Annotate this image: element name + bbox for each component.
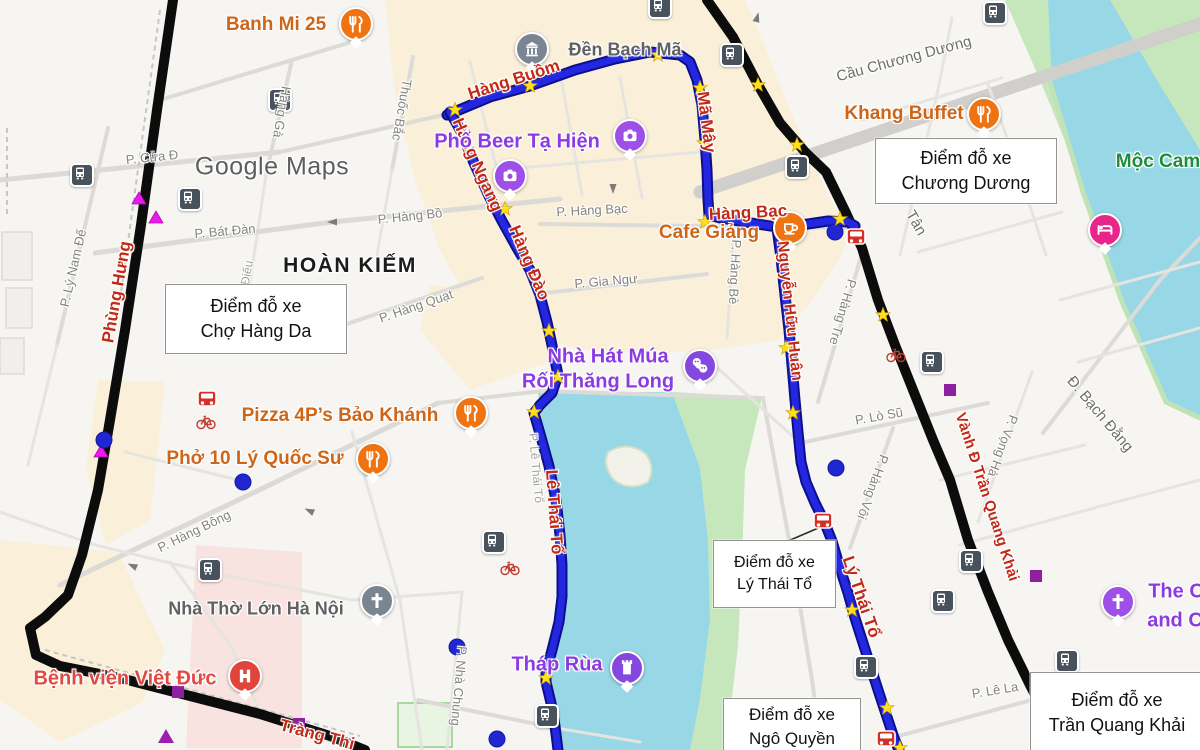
route-street-name-label: Nguyễn Hữu Huân <box>773 240 806 382</box>
transit-station-icon[interactable] <box>178 187 202 211</box>
street-name-label: Đ. Bạch Đằng <box>1063 373 1136 455</box>
restaurant-icon[interactable] <box>356 442 390 476</box>
restaurant-icon[interactable] <box>339 7 373 41</box>
google-maps-watermark: Google Maps <box>195 153 349 182</box>
poi-label: Rối Thăng Long <box>522 371 674 394</box>
poi-label: Nhà Hát Múa <box>547 346 668 369</box>
parking-label-tran-quang-khai: Điểm đỗ xeTrần Quang Khải <box>1030 672 1200 750</box>
poi-label: Bệnh viện Việt Đức <box>33 668 216 691</box>
poi-label: Mộc Cam <box>1116 151 1200 173</box>
hospital-icon[interactable] <box>228 659 262 693</box>
poi-label: Banh Mi 25 <box>226 14 326 36</box>
poi-label: Pizza 4P’s Bảo Khánh <box>242 405 439 427</box>
parking-label-line: Điểm đỗ xe <box>876 146 1056 171</box>
hotel-icon[interactable] <box>1088 213 1122 247</box>
parking-label-line: Lý Thái Tổ <box>714 574 835 596</box>
restaurant-icon[interactable] <box>454 396 488 430</box>
poi-label: Đền Bạch Mã <box>568 40 681 61</box>
transit-station-icon[interactable] <box>1055 649 1079 673</box>
poi-label: Khang Buffet <box>844 103 963 125</box>
restaurant-icon[interactable] <box>967 97 1001 131</box>
transit-station-icon[interactable] <box>535 704 559 728</box>
tower-icon[interactable] <box>610 651 644 685</box>
street-name-label: P. Hàng Tre <box>826 277 859 346</box>
street-name-label: P. Lý Nam Đế <box>57 228 89 309</box>
street-name-label: P. Hàng Quạt <box>377 286 455 325</box>
theater-icon[interactable] <box>683 349 717 383</box>
poi-label: The C <box>1148 581 1200 604</box>
parking-label-chuong-duong: Điểm đỗ xeChương Dương <box>875 138 1057 204</box>
transit-station-icon[interactable] <box>785 155 809 179</box>
street-name-label: P. Hàng Vôi <box>854 453 891 522</box>
route-street-name-label: Hàng Đào <box>504 223 553 304</box>
church-icon[interactable] <box>360 584 394 618</box>
route-street-name-label: Hàng Buồm <box>466 56 563 104</box>
street-name-label: Tân <box>902 208 930 239</box>
poi-label: Nhà Thờ Lớn Hà Nội <box>168 599 344 620</box>
street-name-label: P. Hàng Bạc <box>556 201 628 220</box>
camera-icon[interactable] <box>613 119 647 153</box>
poi-label: and C <box>1147 610 1200 633</box>
poi-label: Cafe Giảng <box>659 222 759 244</box>
poi-label: Phố Beer Tạ Hiện <box>434 131 600 154</box>
route-street-name-label: Tràng Thi <box>277 715 356 750</box>
street-name-label: P. Lê La <box>971 679 1020 701</box>
parking-label-ly-thai-to: Điểm đỗ xeLý Thái Tổ <box>713 540 836 608</box>
street-name-label: Cầu Chương Dương <box>835 33 974 85</box>
street-name-label: P. Hàng Bông <box>155 507 233 555</box>
parking-label-cho-hang-da: Điểm đỗ xeChợ Hàng Da <box>165 284 347 354</box>
parking-label-line: Ngô Quyền <box>724 727 860 750</box>
map-canvas[interactable]: Google Maps HOÀN KIẾM P. Cửa ĐP. Bát Đàn… <box>0 0 1200 750</box>
street-name-label: P. Cửa Đ <box>125 147 179 167</box>
transit-station-icon[interactable] <box>720 43 744 67</box>
street-name-label: P. Hàng Bè <box>726 239 744 305</box>
district-label: HOÀN KIẾM <box>283 254 417 278</box>
parking-label-line: Điểm đỗ xe <box>714 552 835 574</box>
transit-station-icon[interactable] <box>959 549 983 573</box>
route-street-name-label: Mã Mây <box>692 90 719 153</box>
transit-station-icon[interactable] <box>920 350 944 374</box>
parking-label-line: Chương Dương <box>876 171 1056 196</box>
route-street-name-label: Phùng Hưng <box>98 240 136 345</box>
street-name-label: P. Gia Ngư <box>574 271 638 291</box>
poi-label: Phở 10 Lý Quốc Sư <box>166 448 343 470</box>
transit-station-icon[interactable] <box>70 163 94 187</box>
street-name-label: P. Lò Sũ <box>854 404 904 427</box>
parking-label-line: Điểm đỗ xe <box>724 703 860 727</box>
transit-station-icon[interactable] <box>482 530 506 554</box>
transit-station-icon[interactable] <box>931 589 955 613</box>
poi-label: Tháp Rùa <box>511 654 602 677</box>
street-name-label: P. Nhà Chung <box>448 645 470 726</box>
route-street-name-label: Lê Thái Tổ <box>541 469 567 555</box>
parking-label-line: Điểm đỗ xe <box>166 294 346 319</box>
street-name-label: Thuốc Bắc <box>389 78 415 142</box>
street-name-label: P. Vọng Hà <box>985 413 1021 479</box>
street-name-label: P. Bát Đàn <box>194 221 256 241</box>
parking-label-ngo-quyen: Điểm đỗ xeNgô Quyền <box>723 698 861 750</box>
route-street-name-label: Lý Thái Tổ <box>838 554 885 641</box>
street-name-label: P. Hàng Bồ <box>377 205 443 227</box>
parking-label-line: Chợ Hàng Da <box>166 319 346 344</box>
church-icon[interactable] <box>1101 585 1135 619</box>
parking-label-line: Điểm đỗ xe <box>1031 688 1200 713</box>
transit-station-icon[interactable] <box>648 0 672 19</box>
transit-station-icon[interactable] <box>983 1 1007 25</box>
map-overlay: Google Maps HOÀN KIẾM P. Cửa ĐP. Bát Đàn… <box>0 0 1200 750</box>
transit-station-icon[interactable] <box>198 558 222 582</box>
parking-label-line: Trần Quang Khải <box>1031 713 1200 738</box>
transit-station-icon[interactable] <box>854 655 878 679</box>
